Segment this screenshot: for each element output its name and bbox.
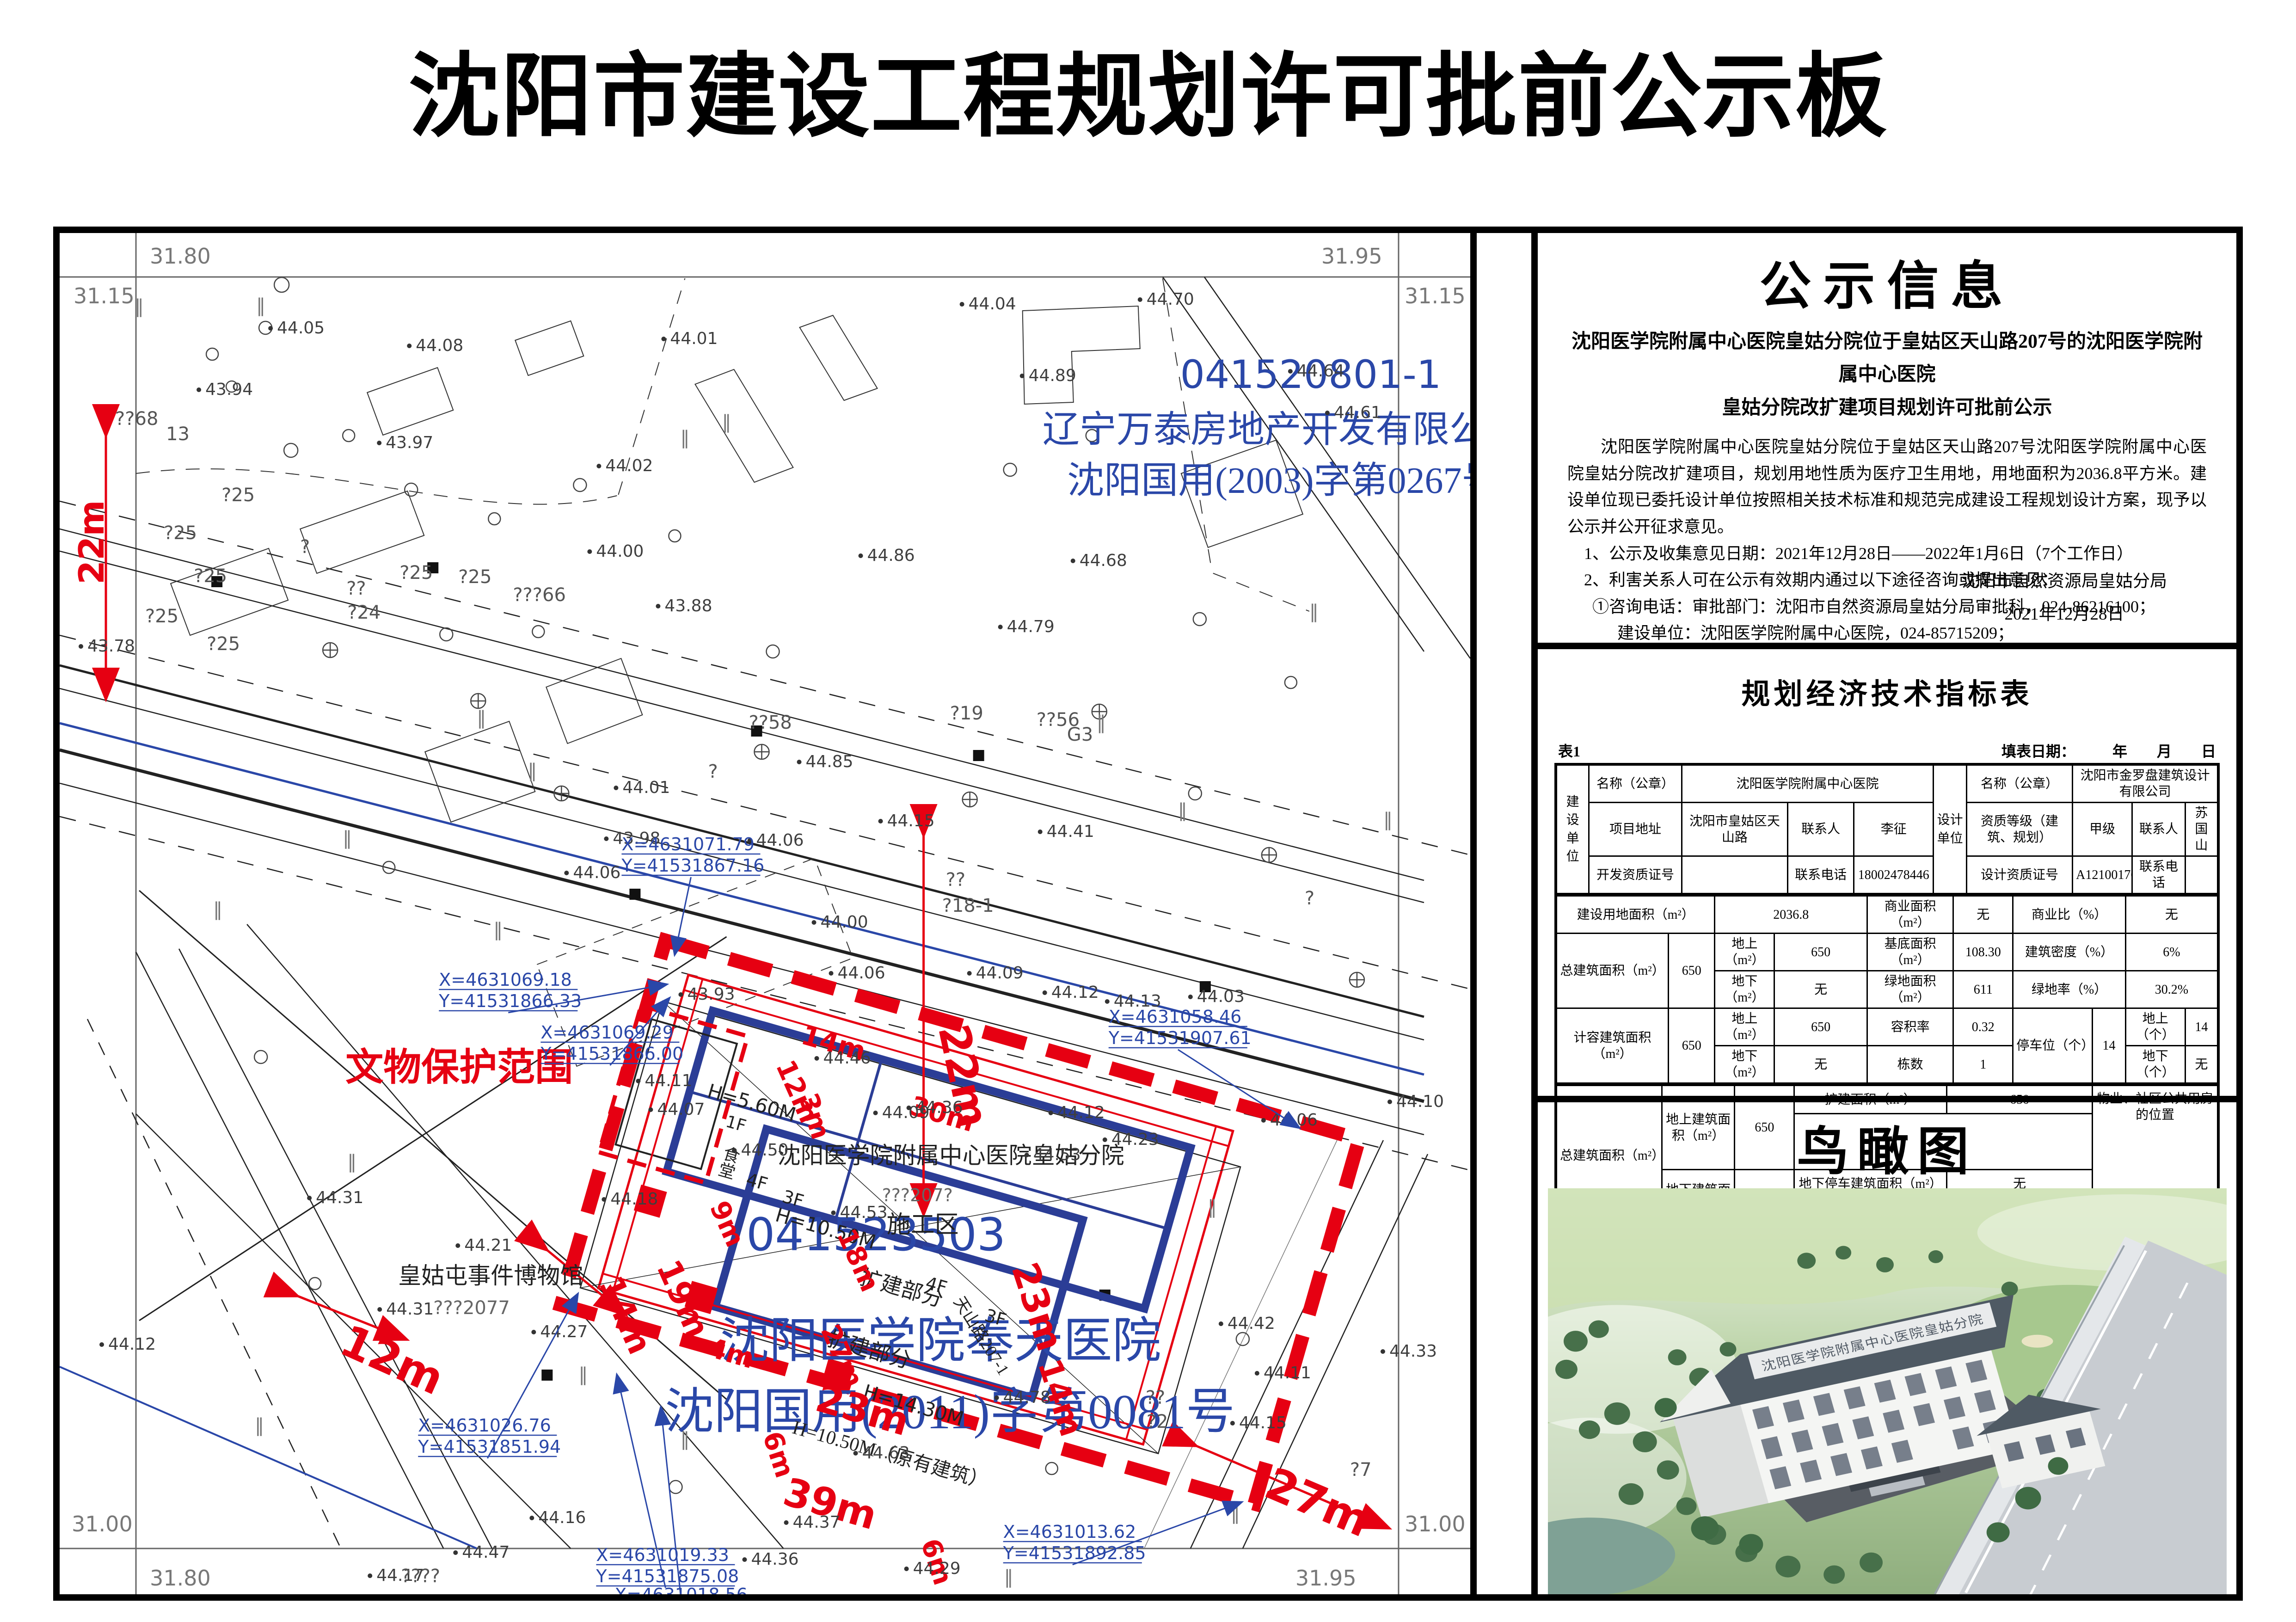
- spot-elevation-dot: [453, 1550, 458, 1555]
- spot-elevation-dot: [407, 344, 411, 348]
- grid-coordinate-label: 31.95: [1321, 244, 1382, 269]
- veg-symbol: ‖: [256, 295, 265, 316]
- table-cell: 李征: [1854, 803, 1934, 856]
- notice-subtitle: 沈阳医学院附属中心医院皇姑分院位于皇姑区天山路207号的沈阳医学院附属中心医院 …: [1567, 326, 2207, 424]
- notice-paragraph: 沈阳医学院附属中心医院皇姑分院位于皇姑区天山路207号沈阳医学院附属中心医院皇姑…: [1567, 434, 2207, 540]
- spot-elevation: 44.33: [1389, 1342, 1437, 1361]
- map-label: 皇姑屯事件博物馆: [398, 1263, 583, 1289]
- map-label: 沈阳医学院奉天医院: [720, 1314, 1161, 1368]
- spot-elevation: 43.94: [205, 380, 253, 399]
- veg-symbol: ‖: [1004, 1567, 1013, 1588]
- table-cell: 地上（m²）: [1715, 934, 1774, 971]
- spot-elevation: 44.11: [645, 1071, 692, 1090]
- spot-elevation-dot: [596, 464, 601, 468]
- notice-subtitle-line1: 沈阳医学院附属中心医院皇姑分院位于皇姑区天山路207号的沈阳医学院附属中心医院: [1567, 326, 2207, 392]
- parcel-number: ?25: [164, 522, 197, 544]
- spot-elevation-dot: [564, 871, 569, 875]
- spot-elevation: 44.12: [1057, 1103, 1105, 1122]
- birdview-section: 鸟瞰图: [1538, 1102, 2236, 1594]
- table-cell: 108.30: [1953, 934, 2013, 971]
- spot-elevation: 44.02: [605, 456, 653, 475]
- spot-elevation: 44.12: [1051, 983, 1099, 1002]
- spot-elevation-dot: [661, 337, 666, 341]
- spot-elevation-dot: [859, 553, 863, 558]
- spot-elevation: 44.06: [838, 964, 885, 983]
- notice-paragraph: 1、公示及收集意见日期：2021年12月28日——2022年1月6日（7个工作日…: [1567, 541, 2207, 567]
- spot-elevation-dot: [829, 971, 834, 976]
- table-cell: 甲级: [2073, 803, 2132, 856]
- veg-symbol: ‖: [255, 1415, 264, 1436]
- spot-elevation-dot: [995, 1395, 999, 1400]
- coordinate-text: X=4631069.29: [540, 1022, 674, 1043]
- indicator-table-section: 规划经济技术指标表 表1 填表日期： 年 月 日 建设 单位名称（公章）沈阳医学…: [1538, 649, 2236, 1102]
- spot-elevation-dot: [614, 786, 618, 790]
- spot-elevation: 44.16: [538, 1508, 586, 1527]
- indicator-table-title: 规划经济技术指标表: [1554, 670, 2220, 712]
- spot-elevation-dot: [1025, 1153, 1029, 1157]
- spot-elevation: 44.10: [1396, 1092, 1444, 1111]
- notice-subtitle-line2: 皇姑分院改扩建项目规划许可批前公示: [1567, 392, 2207, 424]
- parcel-number: ??68: [115, 408, 158, 430]
- table-cell: 650: [1774, 934, 1867, 971]
- spot-elevation-dot: [587, 549, 592, 554]
- spot-elevation: 44.53: [1033, 1145, 1081, 1164]
- spot-elevation-dot: [732, 1148, 737, 1153]
- veg-symbol: ‖: [1097, 712, 1106, 733]
- coordinate-text: X=4631019.33: [596, 1545, 729, 1565]
- spot-elevation: 43.97: [386, 433, 433, 452]
- spot-elevation-dot: [648, 1107, 653, 1112]
- veg-symbol: ‖: [1309, 601, 1319, 622]
- spot-elevation: 44.50: [741, 1141, 788, 1160]
- spot-elevation: 44.09: [976, 964, 1024, 983]
- spot-elevation: 44.21: [464, 1236, 512, 1255]
- table-cell: 无: [1774, 971, 1867, 1008]
- spot-elevation-dot: [1288, 369, 1293, 374]
- notice-signature: 沈阳市自然资源局皇姑分局 2021年12月28日: [1962, 565, 2167, 631]
- spot-elevation-dot: [268, 326, 273, 331]
- table-cell: 14: [2185, 1008, 2218, 1046]
- table-cell: 基底面积（m²）: [1867, 934, 1953, 971]
- table-cell: 无: [1953, 895, 2013, 934]
- spot-elevation-dot: [960, 302, 964, 307]
- veg-symbol: ‖: [578, 1364, 588, 1385]
- spot-elevation-dot: [656, 604, 660, 608]
- coordinate-text: Y=41531866.33: [438, 991, 582, 1011]
- table-number: 表1: [1558, 740, 1580, 761]
- spot-elevation-dot: [1049, 1111, 1053, 1115]
- parcel-number: 13: [166, 424, 190, 445]
- spot-elevation: 44.06: [756, 831, 804, 850]
- site-plan-map: 31.8031.1531.9531.1531.0031.8031.9531.00…: [60, 233, 1477, 1594]
- spot-elevation: 44.41: [1047, 822, 1094, 841]
- board-frame: 31.8031.1531.9531.1531.0031.8031.9531.00…: [53, 227, 2243, 1601]
- spot-elevation: 44.07: [657, 1100, 705, 1119]
- spot-elevation-dot: [1138, 297, 1142, 302]
- spot-elevation: 44.11: [1264, 1364, 1311, 1382]
- parcel-number: ?25: [194, 565, 227, 587]
- spot-elevation-dot: [878, 819, 883, 823]
- spot-elevation-dot: [998, 625, 1003, 629]
- table-cell: 联系电话: [1788, 856, 1854, 895]
- grid-coordinate-label: 31.00: [72, 1511, 133, 1536]
- table-cell: 无: [1774, 1046, 1867, 1084]
- crossed-circle-symbols: [323, 643, 1364, 987]
- table-cell: [2185, 856, 2218, 895]
- map-label: 食堂: [714, 1143, 741, 1181]
- coordinate-text: Y=41531907.61: [1108, 1028, 1252, 1048]
- spot-elevation: 44.15: [1239, 1413, 1287, 1432]
- table-cell: 650: [1669, 934, 1715, 1008]
- indicator-table: 建设用地面积（m²）2036.8商业面积（m²）无商业比（%）无总建筑面积（m²…: [1554, 894, 2220, 1085]
- parcel-outlines: [136, 278, 1309, 1066]
- spot-elevation-dot: [1038, 829, 1043, 834]
- table-cell: 地下（m²）: [1715, 1046, 1774, 1084]
- spot-elevation-dot: [967, 971, 972, 976]
- spot-elevation: 44.36: [915, 1098, 963, 1117]
- table-cell: 沈阳市皇姑区天山路: [1682, 803, 1787, 856]
- veg-symbol: ‖: [1178, 800, 1187, 821]
- spot-elevation-dot: [678, 992, 683, 997]
- map-annotations: 31.8031.1531.9531.1531.0031.8031.9531.00…: [71, 244, 1470, 1594]
- veg-symbol: ‖: [1383, 809, 1393, 830]
- spot-elevation: 44.70: [1147, 290, 1194, 309]
- dimension-label: 12m: [333, 1315, 451, 1405]
- coordinate-text: X=4631058.46: [1109, 1007, 1242, 1027]
- coordinate-callout: X=4631058.46Y=41531907.61: [1108, 1007, 1299, 1128]
- spot-elevation: 44.29: [913, 1559, 961, 1578]
- spot-elevation: 44.64: [1297, 362, 1344, 381]
- parcel-number: ??: [346, 578, 366, 599]
- notice-heading: 公示信息: [1567, 244, 2207, 319]
- table-cell: 650: [1669, 1008, 1715, 1084]
- spot-elevation: 44.01: [670, 329, 718, 348]
- table-cell: 联系人: [2132, 803, 2185, 856]
- parcel-number: ??: [1146, 1387, 1165, 1408]
- table-cell: 地上（个）: [2125, 1008, 2185, 1046]
- spot-elevation-dot: [812, 920, 816, 925]
- table-cell: 650: [1774, 1008, 1867, 1046]
- signature-date: 2021年12月28日: [1962, 598, 2167, 631]
- spot-elevation-dot: [831, 1210, 836, 1215]
- table-cell: 6%: [2125, 934, 2218, 971]
- table-cell: 停车位（个）: [2013, 1008, 2093, 1084]
- table-cell: 联系人: [1788, 803, 1854, 856]
- table-cell: 沈阳医学院附属中心医院: [1682, 764, 1934, 803]
- grid-coordinate-label: 31.95: [1295, 1566, 1357, 1591]
- table-cell: 建筑密度（%）: [2013, 934, 2126, 971]
- spot-elevation: 44.01: [622, 778, 670, 797]
- spot-elevation-dot: [1020, 374, 1025, 378]
- spot-elevation-dot: [1325, 411, 1330, 415]
- map-label: 沈阳国用(2003)字第0267号: [1067, 461, 1470, 501]
- table-cell: 项目地址: [1589, 803, 1682, 856]
- spot-elevation: 44.86: [867, 546, 915, 565]
- spot-elevation: 44.23: [1111, 1130, 1159, 1149]
- panel-gap: [1477, 233, 1531, 1594]
- spot-elevation-dot: [1230, 1421, 1235, 1425]
- indicator-table: 建设 单位名称（公章）沈阳医学院附属中心医院设计 单位名称（公章）沈阳市金罗盘建…: [1554, 763, 2220, 896]
- parcel-number: ?19: [950, 703, 983, 724]
- coordinate-text: Y=41531867.16: [621, 855, 764, 876]
- parcel-number: ???66: [513, 584, 566, 606]
- birdview-title: 鸟瞰图: [1538, 1110, 2236, 1185]
- table-cell: 地上（m²）: [1715, 1008, 1774, 1046]
- parcel-number: ?24: [347, 602, 381, 623]
- spot-elevation: 44.79: [1007, 617, 1055, 636]
- right-panel: 公示信息 沈阳医学院附属中心医院皇姑分院位于皇姑区天山路207号的沈阳医学院附属…: [1531, 233, 2236, 1594]
- table-cell: 无: [2125, 895, 2218, 934]
- spot-elevation: 44.46: [823, 1049, 871, 1068]
- site-plan-svg: 31.8031.1531.9531.1531.0031.8031.9531.00…: [60, 233, 1470, 1594]
- sign-symbols: [211, 562, 1211, 1381]
- table-cell: 1: [1953, 1046, 2013, 1084]
- table-cell: [1682, 856, 1787, 895]
- spot-elevation: 43.93: [687, 985, 735, 1004]
- spot-elevation-dot: [797, 760, 802, 764]
- spot-elevation: 44.06: [573, 863, 620, 882]
- map-label: ???207?: [882, 1185, 953, 1205]
- veg-symbol: ‖: [722, 412, 731, 433]
- grid-coordinate-label: 31.15: [1405, 283, 1466, 308]
- spot-elevation-dot: [784, 1520, 789, 1525]
- spot-elevation-dot: [1188, 995, 1193, 999]
- table-cell: 商业面积（m²）: [1867, 895, 1953, 934]
- spot-elevation: 44.18: [610, 1190, 658, 1209]
- spot-elevation: 43.88: [664, 596, 712, 615]
- parcel-number: ?2: [1147, 1411, 1168, 1432]
- dimension-label: 22m: [71, 500, 112, 584]
- table-cell: 栋数: [1867, 1046, 1953, 1084]
- spot-elevation-dot: [368, 1573, 372, 1578]
- spot-elevation: 44.78: [1003, 1388, 1051, 1407]
- veg-symbol: ‖: [493, 919, 503, 940]
- parcel-number: ??58: [749, 712, 792, 733]
- spot-elevation: 44.00: [821, 913, 868, 932]
- spot-elevation: 44.05: [277, 319, 325, 338]
- spot-elevation: 44.42: [1228, 1314, 1275, 1333]
- coordinate-text: X=4631026.76: [418, 1415, 551, 1436]
- spot-elevation-dot: [604, 836, 608, 841]
- spot-elevation-dot: [636, 1079, 640, 1083]
- spot-elevation: 44.04: [969, 295, 1016, 313]
- parcel-number: ?25: [221, 485, 255, 506]
- parcel-number: ?25: [145, 606, 178, 627]
- veg-symbol: ‖: [1208, 1197, 1217, 1218]
- spot-elevation: 44.15: [887, 811, 935, 830]
- table-cell: 名称（公章）: [1589, 764, 1682, 803]
- table-cell: 开发资质证号: [1589, 856, 1682, 895]
- fill-date: 填表日期： 年 月 日: [2001, 740, 2216, 761]
- spot-elevation-dot: [531, 1330, 536, 1334]
- table-cell: 14: [2093, 1008, 2126, 1084]
- parcel-number: ?: [1305, 888, 1314, 909]
- spot-elevation-dot: [602, 1197, 606, 1202]
- parcel-number: ?25: [207, 633, 240, 655]
- spot-elevation: 44.31: [316, 1188, 363, 1207]
- signature-org: 沈阳市自然资源局皇姑分局: [1962, 565, 2167, 598]
- spot-elevation-dot: [815, 1056, 819, 1061]
- table-cell: 18002478446: [1854, 856, 1934, 895]
- indicator-table-meta: 表1 填表日期： 年 月 日: [1554, 740, 2220, 761]
- spot-elevation: 44.31: [386, 1300, 434, 1319]
- table-cell: 无: [2185, 1046, 2218, 1084]
- coordinate-callout: X=4631013.62Y=41531892.85: [1003, 1502, 1241, 1565]
- spot-elevation-dot: [529, 1516, 534, 1520]
- spot-elevation-dot: [1261, 1118, 1266, 1123]
- spot-elevation-dot: [742, 1557, 747, 1562]
- spot-elevation-dot: [907, 1106, 911, 1110]
- table-cell: 地下（个）: [2125, 1046, 2185, 1084]
- spot-elevation: 44.03: [1197, 987, 1245, 1006]
- table-cell: 苏国山: [2185, 803, 2218, 856]
- table-cell: 名称（公章）: [1966, 764, 2072, 803]
- grid-coordinate-label: 31.80: [150, 244, 211, 269]
- table-cell: 联系电话: [2132, 856, 2185, 895]
- table-cell: 容积率: [1867, 1008, 1953, 1046]
- spot-elevation: 43.78: [87, 637, 135, 656]
- birdview-rendering: 沈阳医学院附属中心医院皇姑分院: [1548, 1188, 2227, 1594]
- spot-elevation-dot: [1255, 1371, 1259, 1376]
- public-notice-section: 公示信息 沈阳医学院附属中心医院皇姑分院位于皇姑区天山路207号的沈阳医学院附属…: [1538, 233, 2236, 649]
- spot-elevation-dot: [99, 1342, 104, 1347]
- table-cell: 地下（m²）: [1715, 971, 1774, 1008]
- parcel-number: ?: [300, 536, 310, 558]
- spot-elevation: 44.36: [751, 1550, 798, 1569]
- veg-symbol: ‖: [213, 899, 222, 920]
- table-cell: 总建筑面积（m²）: [1556, 934, 1669, 1008]
- spot-elevation-dot: [1071, 559, 1075, 563]
- spot-elevation-dot: [307, 1196, 312, 1200]
- table-cell: 30.2%: [2125, 971, 2218, 1008]
- table-cell: 商业比（%）: [2013, 895, 2126, 934]
- spot-elevation-dot: [1105, 999, 1110, 1004]
- grid-coordinate-label: 31.15: [74, 283, 135, 308]
- planning-permit-notice-board: { "title": "沈阳市建设工程规划许可批前公示板", "accent_c…: [0, 0, 2296, 1622]
- grid-coordinate-label: 31.00: [1405, 1511, 1466, 1536]
- map-label: 1F: [724, 1112, 748, 1136]
- spot-elevation-dot: [79, 644, 83, 649]
- spot-elevation: 44.12: [108, 1335, 156, 1354]
- veg-symbol: ‖: [343, 828, 352, 849]
- veg-symbol: ‖: [680, 1429, 689, 1450]
- spot-elevation: 44.68: [1080, 551, 1127, 570]
- spot-elevation-dot: [1103, 1137, 1107, 1142]
- coordinate-callout: X=4631069.18Y=41531866.33: [438, 970, 666, 1013]
- parcel-number: ?25: [399, 562, 433, 584]
- table-cell: 设计资质证号: [1966, 856, 2072, 895]
- parcel-number: ?18-1: [942, 895, 994, 916]
- spot-elevation-dot: [873, 1111, 878, 1115]
- veg-symbol: ‖: [347, 1151, 356, 1173]
- spot-elevation-dot: [1387, 1100, 1392, 1104]
- table-cell: 资质等级（建筑、规划）: [1966, 803, 2072, 856]
- map-label: 辽宁万泰房地产开发有限公司: [1043, 410, 1470, 450]
- table-cell: 绿地面积（m²）: [1867, 971, 1953, 1008]
- coordinate-text: X=4631013.62: [1003, 1522, 1136, 1542]
- spot-elevation: 44.47: [462, 1543, 510, 1562]
- table-cell: 611: [1953, 971, 2013, 1008]
- table-cell: 建设用地面积（m²）: [1556, 895, 1715, 934]
- spot-elevation: 44.27: [540, 1322, 588, 1341]
- veg-symbol: ‖: [135, 296, 144, 317]
- parcel-number: ??: [946, 869, 965, 891]
- grid-coordinate-label: 31.80: [150, 1566, 211, 1591]
- spot-elevation-dot: [455, 1243, 460, 1248]
- spot-elevation-dot: [196, 387, 201, 392]
- table-cell: 设计 单位: [1934, 764, 1967, 894]
- spot-elevation-dot: [853, 1451, 858, 1456]
- spot-elevation-dot: [1219, 1321, 1223, 1326]
- veg-symbol: ‖: [477, 707, 486, 729]
- spot-elevation: 44.53: [840, 1203, 888, 1222]
- coordinate-text: X=4631071.79: [621, 834, 755, 854]
- coordinate-callout: X=4631071.79Y=41531867.16: [621, 834, 764, 954]
- parcel-number: ?25: [458, 566, 491, 588]
- table-cell: 计容建筑面积（m²）: [1556, 1008, 1669, 1084]
- table-cell: 0.32: [1953, 1008, 2013, 1046]
- spot-elevation: 44.85: [806, 752, 853, 771]
- coordinate-text: Y=41531866.00: [540, 1044, 683, 1064]
- coordinate-text: Y=41531875.08: [595, 1566, 739, 1586]
- parcel-number: ????: [401, 1566, 440, 1587]
- map-label: ???2077: [433, 1297, 510, 1319]
- spot-elevation: 44.61: [1334, 403, 1381, 422]
- spot-elevation-dot: [377, 1307, 382, 1312]
- parcel-number: ?: [708, 761, 718, 782]
- table-cell: A121001762: [2073, 856, 2132, 895]
- spot-elevation: 44.08: [416, 336, 463, 355]
- table-cell: 建设 单位: [1556, 764, 1589, 894]
- veg-symbol: ‖: [680, 427, 689, 449]
- page-title: 沈阳市建设工程规划许可批前公示板: [0, 22, 2296, 155]
- spot-elevation-dot: [904, 1567, 909, 1571]
- veg-symbol: ‖: [528, 760, 537, 781]
- map-label: 文物保护范围: [345, 1046, 573, 1088]
- coordinate-text: X=4631018.56: [614, 1585, 748, 1594]
- spot-elevation-dot: [1381, 1349, 1385, 1354]
- spot-elevation: 44.37: [793, 1513, 841, 1532]
- spot-elevation: 44.00: [596, 542, 644, 561]
- table-cell: 绿地率（%）: [2013, 971, 2126, 1008]
- spot-elevation-dot: [377, 441, 381, 445]
- spot-elevation-dot: [1043, 990, 1047, 995]
- table-cell: 2036.8: [1715, 895, 1867, 934]
- dimension-label: 14m: [591, 1270, 660, 1360]
- coordinate-text: X=4631069.18: [439, 970, 572, 990]
- spot-elevation: 44.63: [862, 1444, 910, 1462]
- map-label: 施工区: [887, 1212, 959, 1238]
- parcel-number: G3: [1067, 724, 1093, 745]
- table-cell: 沈阳市金罗盘建筑设计有限公司: [2073, 764, 2218, 803]
- spot-elevation: 44.89: [1029, 366, 1076, 385]
- parcel-number: ?7: [1350, 1459, 1372, 1481]
